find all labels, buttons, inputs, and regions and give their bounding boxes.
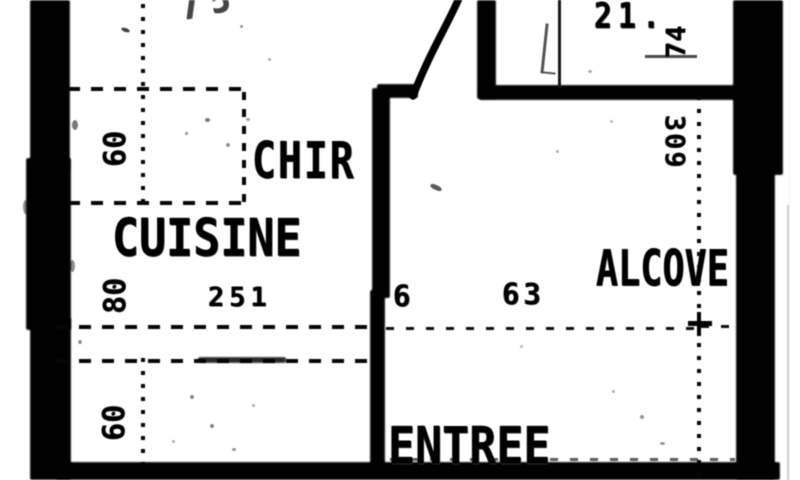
dotted-line-vertical-left [141,4,145,212]
center-partition-wall [372,88,390,298]
scan-noise [185,132,188,135]
crossmark-vertical [697,312,701,336]
dashed-line-a [386,327,698,330]
scan-noise [610,120,613,123]
floor-plan-scan: CUISINE ENTREE CHIR ALCOVE 75 21. 74 309… [0,0,800,480]
counter-outline-right [242,92,246,204]
room-label-entree: ENTREE [388,420,551,472]
counter-outline-bottom [68,201,248,205]
scan-noise [252,404,255,407]
scan-noise [70,260,75,272]
scan-noise [205,118,210,122]
scan-noise [23,200,28,214]
scan-edge-line [789,0,790,480]
dimension-entry-a: 6 [393,282,410,311]
room-label-upper-left: CHIR [252,136,356,186]
dimension-kitchen-width: 251 [208,284,272,311]
scan-noise [612,390,615,393]
dimension-right-height: 309 [655,107,695,177]
scan-noise [190,395,194,399]
dimension-left-mid: 80 [88,266,144,326]
dimension-left-top: 60 [85,119,147,179]
left-wall [30,318,71,480]
dimension-left-bottom: 60 [84,392,146,454]
scan-noise [520,345,523,348]
scan-noise [660,442,665,445]
scan-noise [232,448,236,451]
scan-noise [556,150,559,153]
right-wall [733,0,783,175]
scan-noise [78,340,82,344]
scan-noise [588,70,592,73]
dashed-line-b-dark-segment [198,357,286,363]
door-swing-arc [402,0,466,100]
center-partition-wall [370,290,385,470]
right-wall [736,165,775,480]
left-wall [30,0,70,170]
left-wall [26,158,71,330]
scan-noise [172,440,175,443]
scan-noise [640,415,644,419]
scan-noise [72,120,78,130]
dimension-closet-depth: 74 [650,18,702,66]
scan-noise [240,25,243,28]
scan-noise [246,118,250,121]
scan-noise [268,58,271,61]
scan-noise [430,183,443,193]
counter-outline-top [68,87,248,91]
dimension-top-partial: 75 [176,0,243,27]
room-label-cuisine: CUISINE [112,212,302,264]
room-label-right: ALCOVE [596,244,729,294]
scan-noise [121,27,131,34]
scan-noise [210,424,214,428]
dimension-entry-b: 63 [502,280,545,309]
scan-noise [226,143,230,147]
